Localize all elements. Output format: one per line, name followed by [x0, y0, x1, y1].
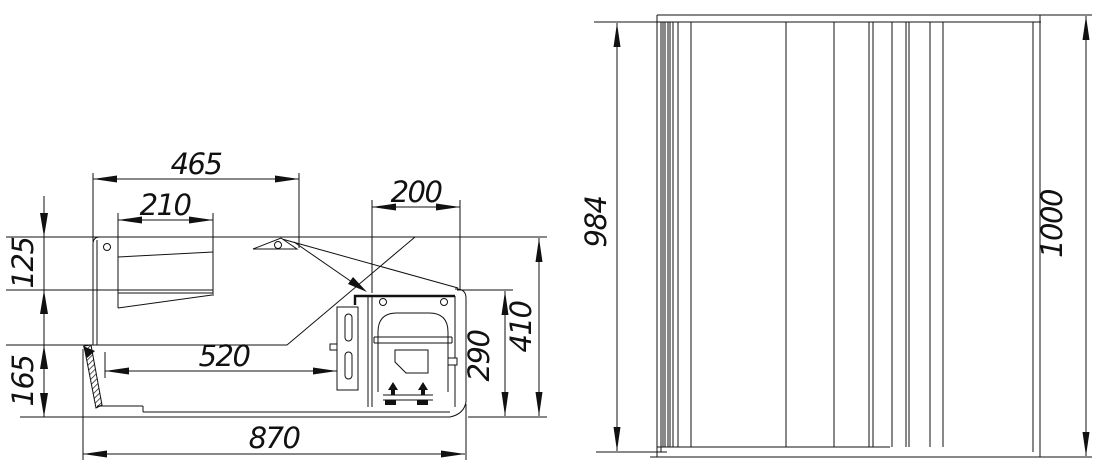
dim-label-290: 290	[462, 331, 496, 382]
bottom-right-corner	[450, 402, 466, 417]
compartment-top	[355, 296, 455, 305]
dim-label-870: 870	[249, 421, 300, 455]
dim-label-410: 410	[504, 302, 538, 353]
vent-panel	[330, 307, 358, 390]
dim-label-210: 210	[140, 188, 191, 222]
compressor-foot	[417, 400, 428, 405]
front-view-panels	[594, 15, 1092, 457]
front-view-dimensions: 984 1000	[579, 16, 1086, 456]
technical-drawing-sheet: 465 210 200 520 870 125 165 290	[0, 0, 1108, 474]
dim-label-165: 165	[6, 356, 40, 407]
vent-slot	[345, 352, 352, 379]
vent-slot	[345, 314, 352, 341]
dim-label-465: 465	[171, 147, 222, 181]
base-plinth	[20, 402, 466, 417]
canopy	[118, 213, 213, 308]
dim-label-984: 984	[579, 197, 613, 248]
machine-compartment	[330, 296, 457, 407]
vent-tab	[330, 344, 337, 350]
dim-label-125: 125	[6, 238, 40, 289]
front-view: 984 1000	[579, 15, 1092, 457]
compressor-foot	[385, 400, 396, 405]
side-section-view: 465 210 200 520 870 125 165 290	[6, 147, 547, 460]
panel-hole	[380, 299, 387, 306]
screw-hole	[104, 244, 111, 251]
compressor-dome	[378, 313, 448, 392]
leader-arrow	[348, 277, 367, 292]
bracket-hole	[275, 242, 282, 249]
dim-label-200: 200	[391, 175, 442, 209]
terminal-box	[395, 350, 428, 373]
case-body-outline	[6, 213, 466, 417]
compressor	[374, 313, 457, 405]
panel-hole	[441, 299, 448, 306]
dim-label-520: 520	[199, 339, 250, 373]
discharge-tube	[448, 358, 457, 365]
diagonal-back-slope	[282, 239, 458, 288]
front-bumper	[83, 345, 102, 408]
dim-label-1000: 1000	[1035, 190, 1069, 258]
